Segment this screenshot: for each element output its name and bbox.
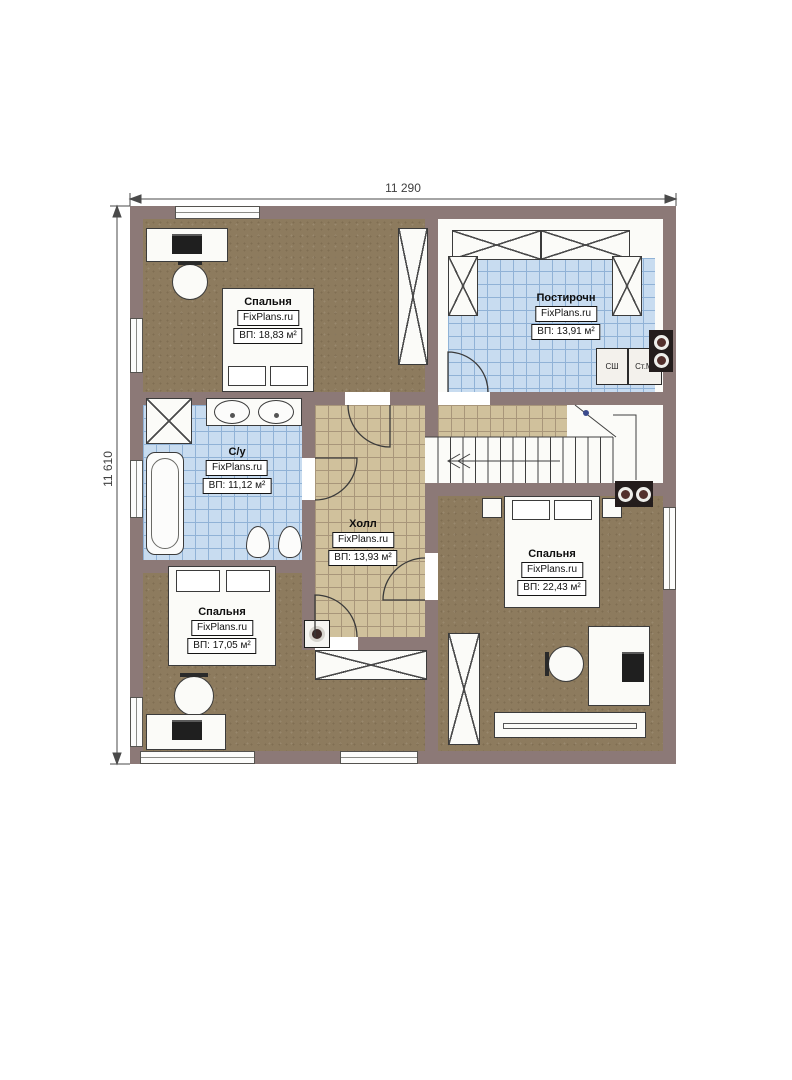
room-area: ВП: 13,93 м² bbox=[328, 550, 397, 566]
window-left-2 bbox=[130, 460, 143, 518]
chair-back bbox=[545, 652, 549, 676]
drying-cabinet-label: СШ bbox=[605, 362, 618, 371]
office-chair bbox=[174, 676, 214, 716]
room-name: Постирочн bbox=[537, 292, 596, 304]
bathtub bbox=[146, 452, 184, 555]
room-label-bathroom: С/у FixPlans.ru ВП: 11,12 м² bbox=[203, 446, 272, 494]
flue-circle bbox=[618, 487, 633, 502]
dresser bbox=[494, 712, 646, 738]
wardrobe-x bbox=[315, 650, 427, 680]
room-label-bedroom-right: Спальня FixPlans.ru ВП: 22,43 м² bbox=[517, 548, 586, 596]
room-label-laundry: Постирочн FixPlans.ru ВП: 13,91 м² bbox=[531, 292, 600, 340]
flue-circle bbox=[654, 353, 669, 368]
pillow bbox=[512, 500, 550, 520]
pillow bbox=[176, 570, 220, 592]
laptop-icon bbox=[622, 652, 644, 682]
room-area: ВП: 13,91 м² bbox=[531, 324, 600, 340]
wall-hall-bottom bbox=[358, 637, 425, 650]
wardrobe-x bbox=[448, 256, 478, 316]
wardrobe-x bbox=[398, 228, 428, 365]
sink bbox=[258, 400, 294, 424]
brand-badge: FixPlans.ru bbox=[521, 562, 583, 578]
room-area: ВП: 11,12 м² bbox=[203, 478, 272, 494]
brand-badge: FixPlans.ru bbox=[191, 620, 253, 636]
room-area: ВП: 22,43 м² bbox=[517, 580, 586, 596]
floor-plan-canvas: 11 290 11 610 СШ Ст.М. bbox=[0, 0, 792, 1080]
chimney-flues bbox=[649, 330, 673, 372]
window-right-1 bbox=[663, 507, 676, 590]
pillow bbox=[228, 366, 266, 386]
room-name: Холл bbox=[349, 518, 377, 530]
pillow bbox=[270, 366, 308, 386]
wall-hall-left-top bbox=[302, 405, 315, 458]
brand-badge: FixPlans.ru bbox=[535, 306, 597, 322]
sink bbox=[214, 400, 250, 424]
wardrobe-x bbox=[612, 256, 642, 316]
wall-laundry-bottom bbox=[490, 392, 663, 405]
radiator-flues bbox=[615, 481, 653, 507]
window-bottom-1 bbox=[140, 751, 255, 764]
chair-back bbox=[178, 261, 202, 265]
room-label-hall: Холл FixPlans.ru ВП: 13,93 м² bbox=[328, 518, 397, 566]
chair-back bbox=[180, 673, 208, 677]
wall-bedroom1-bottom-b bbox=[390, 392, 438, 405]
window-left-1 bbox=[130, 318, 143, 373]
window-left-3 bbox=[130, 697, 143, 747]
room-label-bedroom-top-left: Спальня FixPlans.ru ВП: 18,83 м² bbox=[233, 296, 302, 344]
room-area: ВП: 17,05 м² bbox=[187, 638, 256, 654]
room-label-bedroom-bottom-left: Спальня FixPlans.ru ВП: 17,05 м² bbox=[187, 606, 256, 654]
room-name: С/у bbox=[228, 446, 245, 458]
brand-badge: FixPlans.ru bbox=[206, 460, 268, 476]
room-name: Спальня bbox=[244, 296, 292, 308]
drying-cabinet: СШ bbox=[596, 348, 628, 385]
dimension-top-label: 11 290 bbox=[373, 181, 433, 195]
nightstand bbox=[482, 498, 502, 518]
room-area: ВП: 18,83 м² bbox=[233, 328, 302, 344]
boiler bbox=[304, 620, 330, 648]
brand-badge: FixPlans.ru bbox=[237, 310, 299, 326]
wall-spine-mid bbox=[425, 496, 438, 553]
wardrobe-x bbox=[448, 633, 480, 745]
boiler-dial bbox=[309, 626, 325, 642]
pillow bbox=[226, 570, 270, 592]
brand-badge: FixPlans.ru bbox=[332, 532, 394, 548]
shower-tray bbox=[146, 398, 192, 444]
laptop-icon bbox=[172, 234, 202, 254]
window-top bbox=[175, 206, 260, 219]
laptop-icon bbox=[172, 720, 202, 740]
room-name: Спальня bbox=[198, 606, 246, 618]
office-chair bbox=[172, 264, 208, 300]
room-name: Спальня bbox=[528, 548, 576, 560]
office-chair bbox=[548, 646, 584, 682]
flue-circle bbox=[654, 335, 669, 350]
pillow bbox=[554, 500, 592, 520]
dimension-left-label: 11 610 bbox=[101, 439, 115, 499]
window-bottom-2 bbox=[340, 751, 418, 764]
flue-circle bbox=[636, 487, 651, 502]
